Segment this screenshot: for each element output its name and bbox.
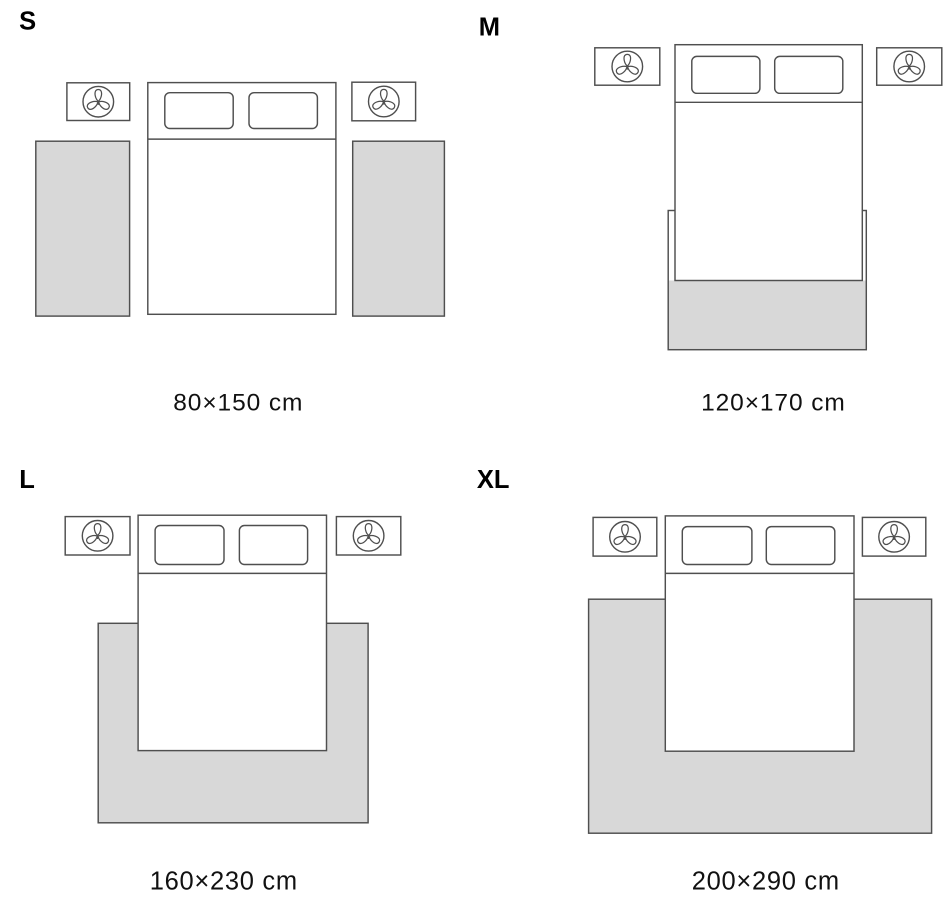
svg-text:80×150 cm: 80×150 cm — [173, 389, 303, 416]
svg-text:M: M — [479, 13, 500, 41]
svg-text:XL: XL — [477, 466, 510, 494]
svg-text:S: S — [19, 8, 36, 36]
svg-text:120×170 cm: 120×170 cm — [701, 389, 846, 416]
svg-text:160×230 cm: 160×230 cm — [150, 867, 298, 895]
svg-text:200×290 cm: 200×290 cm — [692, 867, 840, 895]
svg-text:L: L — [19, 466, 35, 494]
